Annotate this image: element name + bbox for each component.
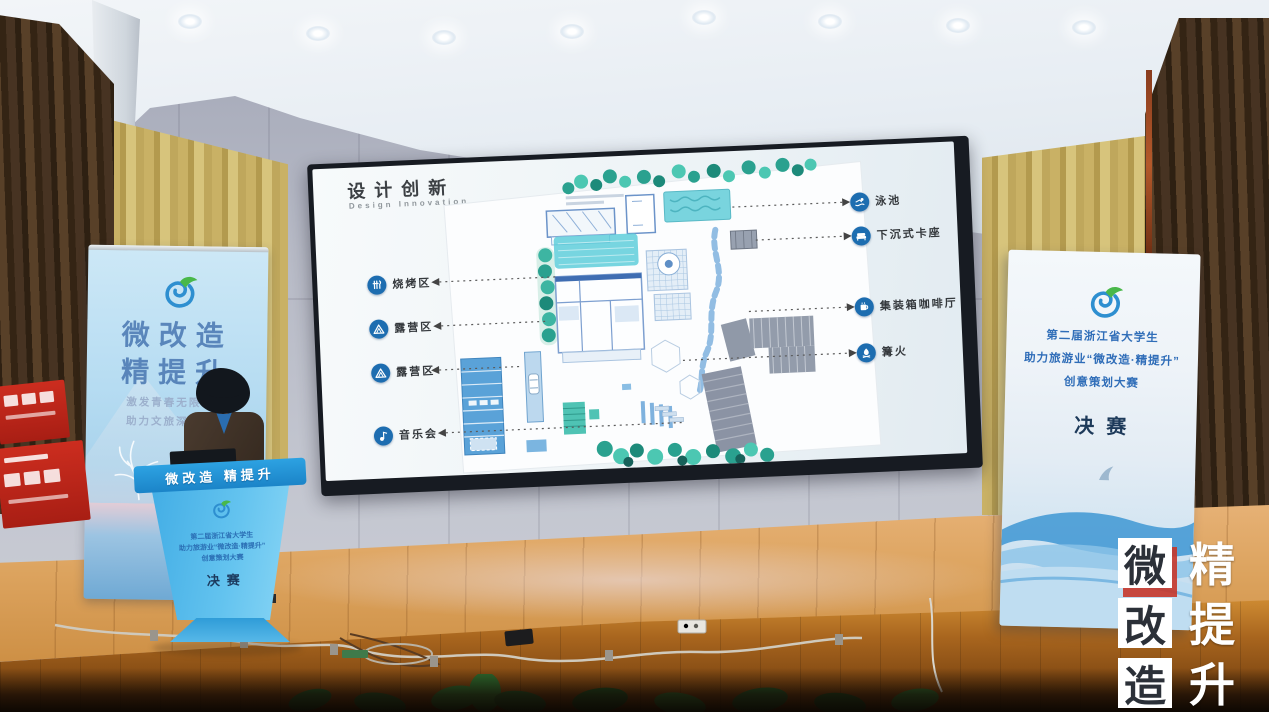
ceiling-light xyxy=(306,26,330,41)
podium-shadow xyxy=(152,640,302,656)
ceiling-light xyxy=(432,30,456,45)
plan-label-camping-1: 露营区 xyxy=(369,316,434,339)
curtain-edge-highlight xyxy=(1146,70,1152,260)
plan-label-pool: 泳池 xyxy=(850,190,902,212)
music-icon xyxy=(374,426,394,446)
watermark-char: 升 xyxy=(1182,654,1242,710)
red-signage-boxes xyxy=(0,377,102,536)
ceiling-light xyxy=(1072,20,1096,35)
presenter-hair-fringe xyxy=(204,382,244,398)
watermark-char: 提 xyxy=(1182,594,1242,650)
event-photo-scene: 设计创新 Design Innovation xyxy=(0,0,1269,712)
tent-icon xyxy=(371,363,391,383)
ceiling-light xyxy=(560,24,584,39)
banner-title-line1: 微改造 xyxy=(87,317,267,357)
bonfire-icon xyxy=(856,342,876,362)
sofa-icon xyxy=(851,226,871,246)
plan-label-concert: 音乐会 xyxy=(374,423,439,446)
podium-final-label: 决赛 xyxy=(143,567,304,592)
ceiling-light xyxy=(946,18,970,33)
event-logo xyxy=(158,272,201,315)
banner-right-line2: 助力旅游业“微改造·精提升” xyxy=(1006,347,1199,375)
led-screen: 设计创新 Design Innovation xyxy=(307,136,983,497)
podium: 第二届浙江省大学生 助力旅游业“微改造·精提升” 创意策划大赛 决赛 微改造 精… xyxy=(132,448,312,656)
coffee-cup-icon xyxy=(854,297,874,317)
event-logo xyxy=(208,498,233,523)
presentation-slide: 设计创新 Design Innovation xyxy=(312,141,967,481)
banner-right-title: 第二届浙江省大学生 助力旅游业“微改造·精提升” 创意策划大赛 xyxy=(1005,324,1199,398)
bbq-icon xyxy=(367,275,387,295)
watermark-char-box: 造 xyxy=(1118,658,1172,708)
ceiling-light xyxy=(818,14,842,29)
ceiling-light xyxy=(692,10,716,25)
banner-right-final-label: 决赛 xyxy=(1004,408,1197,442)
plan-label-bbq: 烧烤区 xyxy=(367,272,432,295)
plan-label-sunken-seating: 下沉式卡座 xyxy=(851,222,942,246)
tent-icon xyxy=(369,319,389,339)
event-logo xyxy=(1083,282,1126,325)
plan-label-camping-2: 露营区 xyxy=(371,360,436,383)
watermark: 微 改 造 精 提 升 xyxy=(1118,532,1268,712)
swimmer-icon xyxy=(850,192,870,212)
watermark-char: 精 xyxy=(1182,534,1242,590)
banner-right-line3: 创意策划大赛 xyxy=(1005,370,1198,398)
floor-shadow xyxy=(0,668,1269,712)
podium-body: 第二届浙江省大学生 助力旅游业“微改造·精提升” 创意策划大赛 决赛 xyxy=(142,484,302,620)
watermark-char-box: 改 xyxy=(1118,598,1172,648)
watermark-char-box: 微 xyxy=(1118,538,1172,588)
podium-text: 第二届浙江省大学生 助力旅游业“微改造·精提升” 创意策划大赛 xyxy=(142,528,303,567)
plan-label-bonfire: 篝火 xyxy=(856,341,908,363)
podium-foot xyxy=(170,618,290,642)
ceiling-light xyxy=(178,14,202,29)
